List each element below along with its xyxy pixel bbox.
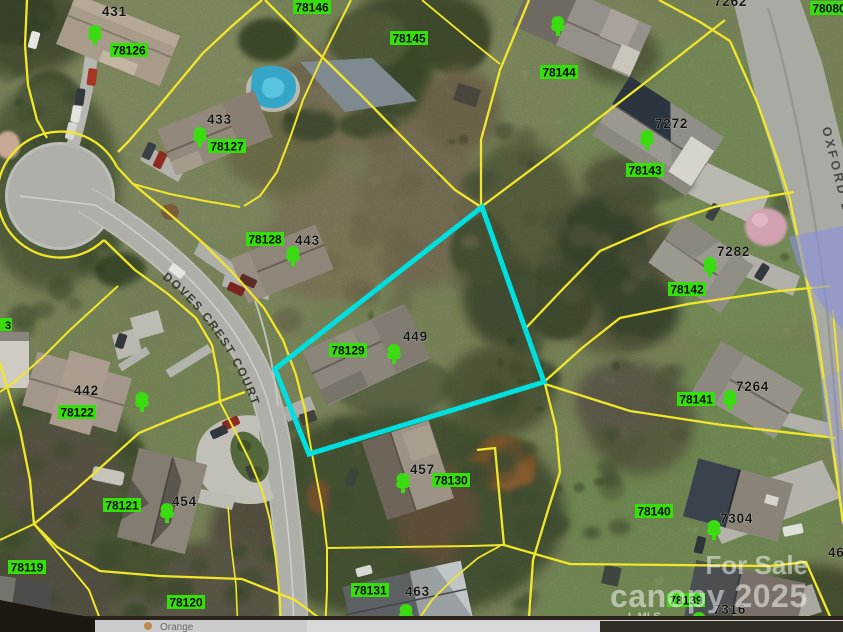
svg-text:46: 46 (828, 545, 843, 560)
svg-text:78143: 78143 (628, 164, 662, 178)
svg-text:443: 443 (295, 233, 320, 248)
svg-text:Orange: Orange (160, 622, 194, 632)
svg-text:463: 463 (405, 584, 430, 599)
svg-text:78142: 78142 (670, 283, 704, 297)
svg-text:7282: 7282 (717, 244, 750, 259)
svg-text:7272: 7272 (655, 116, 688, 131)
svg-text:442: 442 (74, 383, 99, 398)
svg-text:78127: 78127 (210, 140, 244, 154)
svg-text:431: 431 (102, 4, 127, 19)
svg-text:78080: 78080 (812, 2, 843, 16)
svg-text:78128: 78128 (248, 233, 282, 247)
svg-text:7304: 7304 (720, 511, 753, 526)
svg-text:78120: 78120 (169, 596, 203, 610)
svg-text:7264: 7264 (736, 379, 769, 394)
svg-text:78119: 78119 (11, 561, 44, 575)
svg-text:canopy 2025: canopy 2025 (610, 578, 808, 614)
svg-text:7262: 7262 (714, 0, 747, 9)
svg-text:78146: 78146 (295, 1, 329, 15)
svg-text:433: 433 (207, 112, 232, 127)
svg-text:78144: 78144 (542, 66, 576, 80)
svg-text:3: 3 (5, 320, 11, 332)
svg-text:78122: 78122 (60, 406, 94, 420)
svg-text:78140: 78140 (637, 505, 671, 519)
svg-text:For Sale: For Sale (705, 550, 808, 580)
svg-text:457: 457 (410, 462, 435, 477)
svg-text:78126: 78126 (112, 44, 146, 58)
svg-text:454: 454 (172, 494, 197, 509)
svg-text:78141: 78141 (679, 393, 713, 407)
svg-text:78121: 78121 (105, 499, 139, 513)
svg-text:78129: 78129 (331, 344, 365, 358)
svg-text:78145: 78145 (392, 32, 426, 46)
svg-text:78130: 78130 (434, 474, 468, 488)
svg-text:78131: 78131 (353, 584, 387, 598)
svg-text:449: 449 (403, 329, 428, 344)
